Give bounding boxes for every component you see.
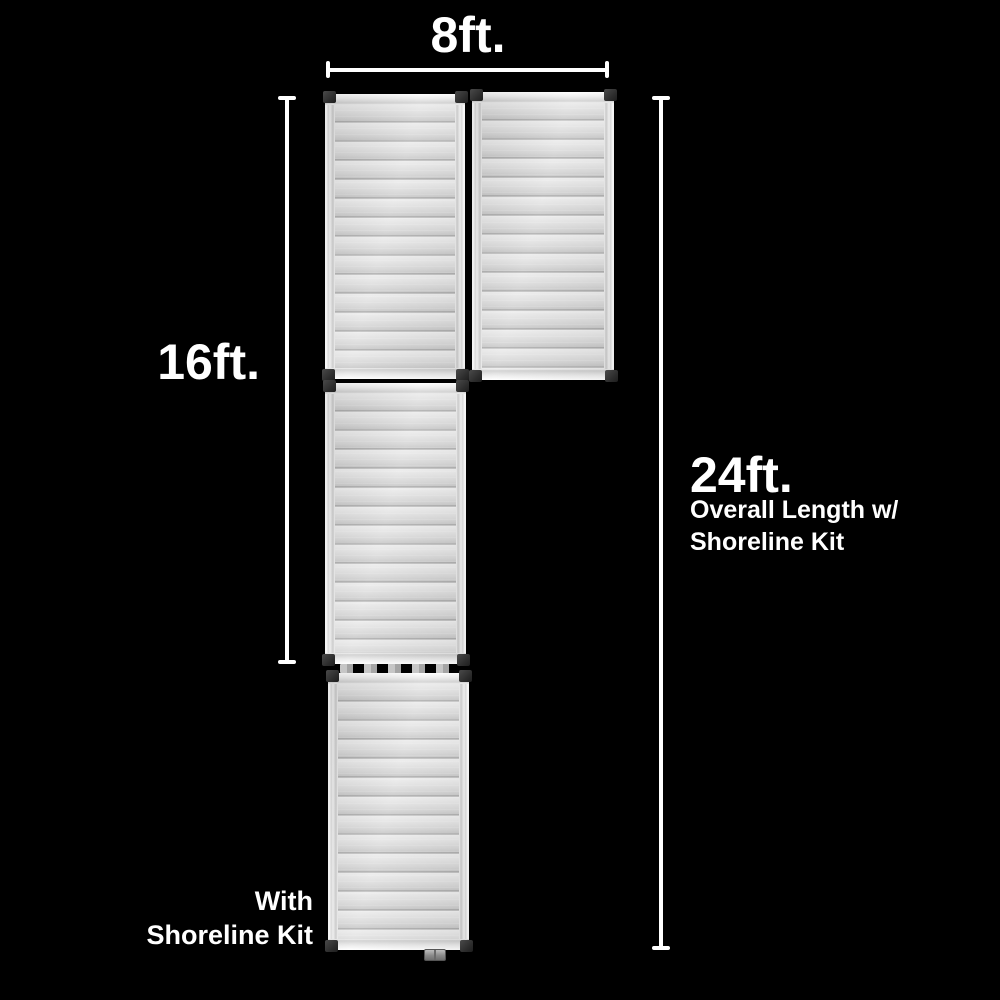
width-dimension-endcap-right — [605, 61, 609, 78]
shoreline-connector — [424, 949, 446, 961]
corner-cap — [605, 370, 618, 382]
panel-sheen — [328, 673, 469, 950]
ramp-section-top-left — [325, 94, 465, 379]
ramp-section-top-right — [472, 92, 614, 380]
ramp-dimension-diagram: 8ft. 16ft. 24ft. Overall Length w/ Shore… — [0, 0, 1000, 1000]
width-dimension-endcap-left — [326, 61, 330, 78]
ramp-length-dimension-endcap-top — [278, 96, 296, 100]
overall-length-dimension-endcap-bottom — [652, 946, 670, 950]
ramp-section-middle — [325, 383, 466, 664]
corner-cap — [455, 91, 468, 103]
overall-length-dimension-endcap-top — [652, 96, 670, 100]
corner-cap — [469, 370, 482, 382]
panel-sheen — [472, 92, 614, 380]
ramp-length-dimension-endcap-bottom — [278, 660, 296, 664]
corner-cap — [325, 940, 338, 952]
corner-cap — [459, 670, 472, 682]
corner-cap — [326, 670, 339, 682]
corner-cap — [604, 89, 617, 101]
overall-length-subtitle-line2: Shoreline Kit — [690, 526, 950, 558]
corner-cap — [460, 940, 473, 952]
bottom-caption: With Shoreline Kit — [60, 884, 313, 952]
shoreline-connector-seam — [434, 950, 436, 960]
corner-cap — [456, 380, 469, 392]
bottom-caption-line2: Shoreline Kit — [60, 918, 313, 952]
corner-cap — [323, 380, 336, 392]
corner-cap — [323, 91, 336, 103]
corner-cap — [457, 654, 470, 666]
width-dimension-label: 8ft. — [328, 0, 608, 70]
corner-cap — [322, 654, 335, 666]
corner-cap — [470, 89, 483, 101]
panel-sheen — [325, 383, 466, 664]
hinge-connection — [340, 664, 458, 673]
panel-sheen — [325, 94, 465, 379]
ramp-section-bottom-shoreline — [328, 673, 469, 950]
overall-length-subtitle-line1: Overall Length w/ — [690, 494, 950, 526]
overall-length-dimension-line — [659, 98, 663, 948]
ramp-length-dimension-label: 16ft. — [90, 327, 260, 397]
bottom-caption-line1: With — [60, 884, 313, 918]
width-dimension-line — [328, 68, 608, 72]
ramp-length-dimension-line — [285, 98, 289, 662]
